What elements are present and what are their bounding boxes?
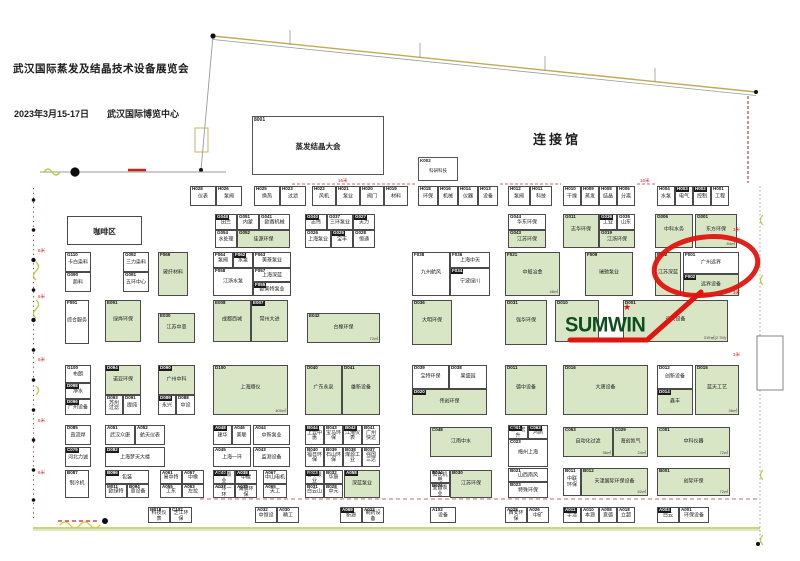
booth: F021中船冶金48㎡ xyxy=(505,252,560,296)
booth: G044华东环保 xyxy=(508,214,546,230)
booth-name: 中设 xyxy=(177,400,194,409)
booth-name: 田兰 xyxy=(216,217,236,226)
booth: A055工东 xyxy=(160,484,182,498)
booth: A001环保设备 xyxy=(679,507,709,523)
booth: G091五环中心 xyxy=(123,272,149,292)
booth-size-note: 36㎡ xyxy=(603,450,611,456)
booth: G035山东 xyxy=(617,214,635,230)
booth-name: 白云山 xyxy=(306,487,323,496)
booth: F032江苏深蓝 xyxy=(655,252,681,296)
booth-name: 宇清 xyxy=(564,510,580,519)
booth-name: 海晨环保 xyxy=(236,484,256,498)
booth: G110卡白染料 xyxy=(65,252,91,272)
booth-name: 山西南风 xyxy=(509,471,547,480)
booth-id: E042 xyxy=(308,314,321,319)
aisle-measure-label: 6米 xyxy=(38,470,45,476)
booth: B043宝马环保 xyxy=(324,425,343,445)
booth: A003白云 xyxy=(657,507,679,523)
booth-name: 梅州上海 xyxy=(509,447,547,456)
booth-name: 上海梦天大楼 xyxy=(106,452,164,461)
booth-id: D100 xyxy=(214,366,227,371)
booth-size-note: 72㎡ xyxy=(720,489,728,495)
booth: D039宝特环保 xyxy=(412,365,449,389)
booth: A037一冷一环 xyxy=(213,484,235,498)
booth: H021泵业 xyxy=(336,186,360,206)
booth: F091综合服务 xyxy=(65,300,89,344)
booth-name: 仪表 xyxy=(191,191,215,200)
booth-name: 鸿鹄 xyxy=(529,428,547,437)
booth-name: 中新泵业 xyxy=(254,430,289,439)
booth-name: 恒通 xyxy=(354,234,374,243)
booth: G100布朗 xyxy=(65,365,91,383)
booth: G028恒通 xyxy=(353,230,375,248)
booth-name: 诺亚环保 xyxy=(106,374,140,383)
booth: A069新源 xyxy=(340,507,362,523)
booth-name: 提纯 xyxy=(124,400,140,409)
floor-plan: 武汉国际蒸发及结晶技术设备展览会 2023年3月15-17日 武汉国际博览中心 … xyxy=(0,0,800,561)
booth-name: 中橡 xyxy=(183,473,203,482)
booth-name: 意德 xyxy=(600,510,616,519)
booth: F036上海中天 xyxy=(450,252,490,268)
booth: A067中山电机 xyxy=(263,470,287,484)
booth-name: 中山电机 xyxy=(264,473,286,482)
booth: B031白云山 xyxy=(305,484,324,498)
booth: B011中联环保 xyxy=(563,468,581,496)
booth: D085直流焊 xyxy=(65,425,91,445)
booth: A046美联 xyxy=(232,425,251,445)
booth: A018立超 xyxy=(617,507,635,523)
booth: B042江淹仪表 xyxy=(343,425,362,445)
booth-name: 深蓝泵业 xyxy=(345,478,379,487)
booth: G041欧赛机械 xyxy=(259,214,290,230)
booth-name: 设备 xyxy=(479,191,497,200)
aisle-measure-label: 16米 xyxy=(640,178,650,184)
booth-name: 干燥 xyxy=(564,191,580,200)
booth: D089永兴 xyxy=(158,395,176,415)
booth-name: 宁波绿川 xyxy=(451,276,489,285)
booth-name: 伟创环保 xyxy=(413,397,486,406)
booth-name: 志华环保 xyxy=(564,225,598,234)
booth-name: 美联 xyxy=(233,430,250,439)
booth: A048建华 xyxy=(213,425,232,445)
booth: A102设备 xyxy=(430,507,456,523)
booth-name: 台橡环保 xyxy=(308,322,379,331)
booth-name: 上海中天 xyxy=(451,255,489,264)
booth: B021山西南风 xyxy=(508,468,548,482)
booth-name: 福日环保 xyxy=(306,450,323,465)
booth-id: G011 xyxy=(564,215,577,220)
booth-name: 中船冶金 xyxy=(506,267,559,276)
booth-name: 天津国际环保设备 xyxy=(582,476,647,485)
aisle-measure-label: 6米 xyxy=(38,357,45,363)
booth-name: 航天仪表 xyxy=(136,430,164,439)
booth-id: F021 xyxy=(506,253,518,258)
booth: B034阳氏机电 xyxy=(430,470,450,483)
booth-name: 三力染料 xyxy=(124,257,148,266)
booth-name: 上海一环 xyxy=(214,452,250,461)
booth-id: C048 xyxy=(431,428,444,433)
booth-name: 煤源工业 xyxy=(344,450,361,465)
booth: H009蒸发 xyxy=(581,186,599,206)
booth-name: 创际环保 xyxy=(658,476,729,485)
booth-id: D012 xyxy=(658,366,671,371)
booth-id: F069 xyxy=(159,253,171,258)
booth-id: D015 xyxy=(696,366,709,371)
booth-size-note: 52㎡ xyxy=(638,489,646,495)
booth: B026宜昌泵业 xyxy=(430,483,450,497)
booth-name: 立超 xyxy=(618,510,634,519)
booth: A028西安环保 xyxy=(505,507,527,523)
booth-name: 制药设备 xyxy=(363,508,383,523)
booth-name: 本源 xyxy=(582,510,598,519)
booth-name: 永兴 xyxy=(159,400,175,409)
booth-name: 西安环保 xyxy=(506,508,526,523)
booth-name: 特殊环保 xyxy=(509,485,547,494)
booth-name: 江苏中意 xyxy=(159,322,194,331)
booth-name: 白云 xyxy=(658,510,678,519)
booth-name: 换热 xyxy=(255,191,279,200)
booth-id: C053 xyxy=(564,428,577,433)
booth-id: D040 xyxy=(306,366,319,371)
booth: A044中新泵业 xyxy=(253,425,290,445)
booth-name: 阳氏机电 xyxy=(431,470,449,483)
booth-name: 广州设备 xyxy=(66,402,90,411)
booth: H010干燥 xyxy=(563,186,581,206)
booth: B040福日环保 xyxy=(305,447,324,467)
booth: F064泵阀 xyxy=(213,252,233,268)
booth: D036大明环保 xyxy=(412,300,452,345)
booth-name: 易中特 xyxy=(161,473,181,482)
booth-name: 武汉众康 xyxy=(106,430,134,439)
booth: E008成都西城 xyxy=(213,300,251,342)
booth-name: 江淹仪表 xyxy=(344,428,361,443)
booth: B038煤源工业 xyxy=(343,447,362,467)
booth-id: C023 xyxy=(509,440,522,445)
booth-id: B012 xyxy=(582,469,595,474)
booth: A008意德 xyxy=(599,507,617,523)
booth: D011德中设备 xyxy=(505,365,547,415)
booth-name: 常州大进 xyxy=(252,314,287,323)
booth: G025宝丰 xyxy=(331,230,353,248)
booth-name: 水泵 xyxy=(234,255,252,264)
booth-name: 建华 xyxy=(214,430,231,439)
booth: F055欧美特泵业 xyxy=(253,282,291,296)
booth-name: 浙江宏升 xyxy=(509,425,527,439)
booth-name: 中矿 xyxy=(528,510,548,519)
booth: E030江苏中意 xyxy=(158,313,195,343)
booth: D020伟创环保 xyxy=(412,389,487,415)
booth: B028中元 xyxy=(324,484,343,498)
booth-id: B087 xyxy=(66,471,79,476)
booth: B037强国三达 xyxy=(362,447,380,467)
booth-name: 中科水务 xyxy=(656,225,692,234)
booth: F002远界设备 xyxy=(683,274,739,296)
booth: A065天工 xyxy=(263,484,287,498)
booth-name: 广州远界 xyxy=(684,258,738,267)
booth: F069玻纤材料 xyxy=(158,252,188,296)
aisle-measure-label: 3米 xyxy=(733,290,740,296)
booth-name: 工东 xyxy=(161,487,181,496)
booth-name: 净水 xyxy=(66,386,90,395)
booth-name: 江南中水 xyxy=(431,436,491,445)
booth-name: 自动化过滤 xyxy=(564,436,612,445)
booth: F057上海深蓝 xyxy=(253,268,291,282)
booth: B094意设备 xyxy=(127,484,149,498)
booth: 咖啡区 xyxy=(67,216,142,245)
booth-name: 颜料 xyxy=(66,277,90,286)
booth: B044上云中惠 xyxy=(305,425,324,445)
booth-size-note: 400㎡ xyxy=(275,408,286,414)
booth-id: D038 xyxy=(450,366,463,371)
booth-name: 泵阀 xyxy=(509,191,529,200)
booth-id: F034 xyxy=(451,269,463,274)
booth: D031强华环保 xyxy=(505,300,547,345)
booth: A011宇清 xyxy=(563,507,581,523)
booth-name: 布朗 xyxy=(66,369,90,378)
booth: H023过滤 xyxy=(280,186,306,206)
booth-name: 结晶 xyxy=(600,191,616,200)
booth-name: 分离 xyxy=(618,191,634,200)
booth-name: 美菱泵业 xyxy=(254,255,290,264)
booth: H019材料 xyxy=(384,186,408,206)
booth-id: D094 xyxy=(106,366,119,371)
booth-name: 宜昌泵业 xyxy=(431,483,449,497)
booth: A035海晨环保 xyxy=(235,484,257,498)
booth: D098净水 xyxy=(65,383,91,399)
booth: G052佳源环保 xyxy=(237,230,290,248)
booth-name: 大唐设备 xyxy=(564,383,647,392)
booth: A040草中泵业 xyxy=(213,470,235,484)
booth-id: D020 xyxy=(413,390,426,395)
booth-name: 包装 xyxy=(106,473,148,482)
booth-name: 内蒙 xyxy=(238,217,258,226)
booth: H012泵阀 xyxy=(508,186,530,206)
booth-id: B001 xyxy=(658,469,671,474)
booth-id: D031 xyxy=(506,301,519,306)
booth-name: 天力 xyxy=(354,217,374,226)
booth-layer: H028仪表H026泵阀H025换热H023过滤H022风机H021泵业H020… xyxy=(0,0,800,561)
booth: C048江南中水 xyxy=(430,427,492,457)
booth-name: 天工 xyxy=(264,487,286,496)
booth-name: 精工 xyxy=(278,510,298,519)
aisle-measure-label: 6米 xyxy=(38,294,45,300)
booth-name: 强华环保 xyxy=(506,316,546,325)
booth: H003电气 xyxy=(675,186,693,206)
booth-id: F009 xyxy=(586,253,598,258)
aisle-measure-label: 6米 xyxy=(38,418,45,424)
booth-name: 九州航风 xyxy=(413,267,449,276)
booth-name: 欧赛机械 xyxy=(260,217,289,226)
booth-id: D039 xyxy=(413,366,426,371)
booth-name: 左拉 xyxy=(183,487,203,496)
booth: E091绿烨环保 xyxy=(105,300,141,342)
booth-name: 宝马环保 xyxy=(325,428,342,443)
star-icon: ★ xyxy=(623,302,631,313)
booth: G019江浙环保 xyxy=(599,230,635,248)
booth-id: D041 xyxy=(343,366,356,371)
booth: D088中设 xyxy=(176,395,195,415)
booth: C063鸿鹄 xyxy=(528,425,548,439)
booth: D091提纯 xyxy=(123,395,141,415)
booth: G043江苏环保 xyxy=(508,230,546,248)
sumwin-logo: SUMWIN xyxy=(565,313,645,338)
booth-name: 五环中心 xyxy=(124,277,148,286)
booth-name: 科技 xyxy=(531,191,551,200)
booth: G090颜料 xyxy=(65,272,91,292)
booth-name: 晋中泵业 xyxy=(306,470,323,484)
booth: D038果盛园 xyxy=(449,365,487,389)
booth: D012创新设备 xyxy=(657,365,693,389)
booth-id: D014 xyxy=(658,390,671,395)
booth-name: 泵阀 xyxy=(214,255,232,264)
booth: H002控制 xyxy=(693,186,711,206)
booth: G048田兰 xyxy=(215,214,237,230)
booth-name: 控制 xyxy=(694,191,710,200)
booth: H016机械 xyxy=(438,186,458,206)
booth: G026上海泵业 xyxy=(305,230,331,248)
booth-name: 江苏深蓝 xyxy=(656,267,680,276)
booth: D015蓝天工艺36㎡ xyxy=(695,365,739,415)
booth-name: 监测设备 xyxy=(254,452,289,461)
booth-name: 东方环保 xyxy=(696,225,736,234)
booth-name: 上海泵业 xyxy=(306,234,330,243)
booth: E042台橡环保72㎡ xyxy=(307,313,380,343)
booth: M018科技仪表 xyxy=(148,507,170,523)
booth: H018环保 xyxy=(418,186,438,206)
booth-name: 苏州过滤 xyxy=(106,398,122,413)
booth: C053自动化过滤36㎡ xyxy=(563,427,613,457)
booth: G051内蒙 xyxy=(237,214,259,230)
booth: A058深蓝泵业 xyxy=(344,470,380,498)
booth-name: 中联环保 xyxy=(564,474,580,489)
booth: D014鑫丰 xyxy=(657,389,693,415)
booth: D096广州设备 xyxy=(65,399,91,415)
booth: C102芝江环保 xyxy=(170,507,192,523)
booth-id: E007 xyxy=(252,301,265,306)
booth-name: 江浙水泵 xyxy=(214,276,252,285)
booth-name: 风机 xyxy=(313,191,335,200)
booth: C001中科仪器72㎡ xyxy=(657,427,730,457)
booth-size-note: 72㎡ xyxy=(370,336,378,342)
booth-name: 鑫丰 xyxy=(658,397,692,406)
booth-name: 综合服务 xyxy=(66,315,88,324)
booth: H026泵阀 xyxy=(216,186,242,206)
booth-name: 广州中科 xyxy=(159,374,194,383)
booth-name: 江浙环保 xyxy=(600,234,634,243)
booth-name: 中碳 xyxy=(236,473,256,482)
booth-id: E008 xyxy=(214,301,227,306)
booth: B033晋中泵业 xyxy=(305,470,324,484)
booth: H008结晶 xyxy=(599,186,617,206)
booth: D090广州中科 xyxy=(158,365,195,395)
booth-size-note: 84㎡ xyxy=(727,241,735,247)
booth: A053左拉 xyxy=(182,484,204,498)
booth-name: 设备 xyxy=(431,510,455,519)
booth-name: 上海深蓝 xyxy=(254,271,290,280)
booth: F034宁波绿川 xyxy=(450,268,490,296)
booth-name: 三环泵业 xyxy=(328,217,352,226)
booth-name: 机械 xyxy=(439,191,457,200)
booth-name: 远界设备 xyxy=(684,280,738,289)
booth-size-note: 48㎡ xyxy=(550,289,558,295)
booth: H014仪器 xyxy=(458,186,478,206)
booth: A057中橡 xyxy=(182,470,204,484)
booth: H011科技 xyxy=(530,186,552,206)
booth: G040志伟 xyxy=(305,214,327,230)
booth-name: 环保设备 xyxy=(680,510,708,519)
booth-name: 环保 xyxy=(419,191,437,200)
booth-size-note: 72㎡ xyxy=(720,450,728,456)
booth-name: 大明环保 xyxy=(413,316,451,325)
booth-name: 新源 xyxy=(341,510,361,519)
aisle-measure-label: 3米 xyxy=(733,352,740,358)
booth-id: G001 xyxy=(696,215,709,220)
booth-name: 华辰 xyxy=(325,473,342,482)
booth: G036工业 xyxy=(599,214,617,230)
booth-name: 德中设备 xyxy=(506,383,546,392)
booth-name: 中恒设 xyxy=(256,510,276,519)
booth-id: G006 xyxy=(656,215,669,220)
booth: B032华辰 xyxy=(324,470,343,484)
booth-name: 工程 xyxy=(712,191,728,200)
booth: H001工程 xyxy=(711,186,729,206)
booth: B012天津国际环保设备52㎡ xyxy=(581,468,648,496)
booth-id: B030 xyxy=(451,471,464,476)
booth: A010本源 xyxy=(581,507,599,523)
booth-name: 一冷一环 xyxy=(214,484,234,498)
booth: H006分离 xyxy=(617,186,635,206)
booth-id: F058 xyxy=(214,269,226,274)
booth: C029海创氮气24㎡ xyxy=(613,427,648,457)
booth: D016大唐设备 xyxy=(563,365,648,415)
booth-name: 江苏环保 xyxy=(509,234,545,243)
booth-name: 志伟 xyxy=(306,217,326,226)
booth-name: 佳源环保 xyxy=(238,234,289,243)
booth-id: D011 xyxy=(506,366,519,371)
booth: G092三力染料 xyxy=(123,252,149,272)
booth-name: 科技仪表 xyxy=(149,508,169,523)
booth-name: 芝江环保 xyxy=(171,508,191,523)
booth: C061浙江宏升 xyxy=(508,425,528,439)
booth: H022风机 xyxy=(312,186,336,206)
booth-name: 材料 xyxy=(385,191,407,200)
booth-name: 瑞驰泵业 xyxy=(586,267,632,276)
booth-name: 上云中惠 xyxy=(306,428,323,443)
booth-name: 仪器 xyxy=(459,191,477,200)
aisle-measure-label: 16米 xyxy=(338,178,348,184)
booth: F009瑞驰泵业 xyxy=(585,252,633,296)
booth-name: 泵业 xyxy=(337,191,359,200)
booth: D100上海顺仪400㎡ xyxy=(213,365,288,415)
booth-name: 卡白染料 xyxy=(66,257,90,266)
booth: E007常州大进 xyxy=(251,300,288,342)
booth-name: 宝丰 xyxy=(332,234,352,243)
booth: C079河北力诚 xyxy=(65,447,91,467)
booth-name: 创新设备 xyxy=(658,372,692,381)
booth: A023制药设备 xyxy=(362,507,384,523)
booth: B039石山环保 xyxy=(324,447,343,467)
booth: F038九州航风 xyxy=(412,252,450,296)
booth: A026中矿 xyxy=(527,507,549,523)
booth-name: 河北力诚 xyxy=(66,452,90,461)
booth-id: C029 xyxy=(614,428,627,433)
booth-name: 蓝天工艺 xyxy=(696,383,738,392)
booth: A043监测设备 xyxy=(253,447,290,467)
booth: C023梅州上海 xyxy=(508,439,548,467)
booth-name: 阀门 xyxy=(361,191,383,200)
booth-name: 华东环保 xyxy=(509,217,545,226)
booth: B023特殊环保 xyxy=(508,482,548,498)
